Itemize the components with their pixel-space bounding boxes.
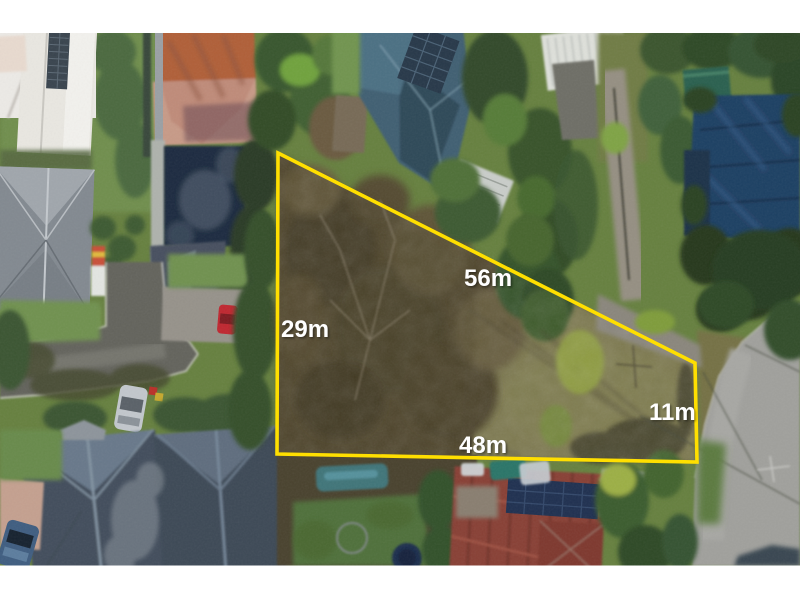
svg-text:48m: 48m — [459, 432, 507, 459]
svg-text:29m: 29m — [281, 316, 329, 343]
svg-text:11m: 11m — [649, 399, 696, 426]
svg-text:56m: 56m — [464, 265, 512, 292]
